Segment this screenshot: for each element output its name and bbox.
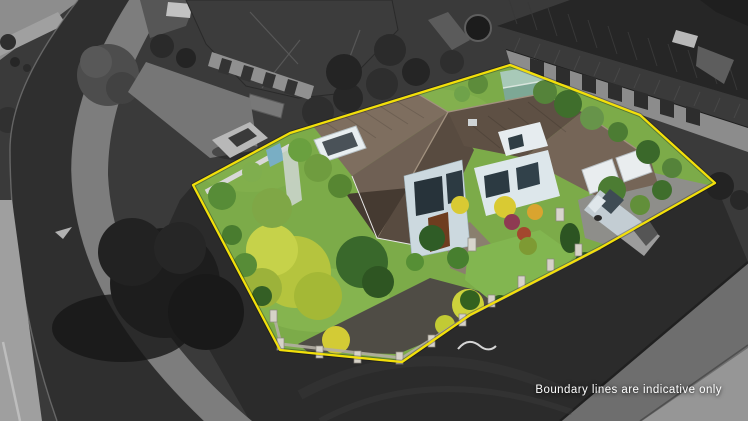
shrub: [208, 182, 236, 210]
red-cordyline: [504, 214, 520, 230]
aerial-photo: Boundary lines are indicative only: [0, 0, 748, 421]
shrub: [288, 138, 312, 162]
rock: [10, 57, 20, 67]
street-tree: [80, 46, 112, 78]
tree: [636, 140, 660, 164]
scene-canvas: [0, 0, 748, 421]
yellow-shrub: [451, 196, 469, 214]
tree: [608, 122, 628, 142]
hedge: [652, 180, 672, 200]
gate-pillar: [556, 208, 564, 221]
van-wheel: [594, 215, 602, 221]
shrub: [519, 237, 537, 255]
orange-shrub: [527, 204, 543, 220]
fence-post: [270, 310, 277, 322]
bush: [402, 58, 430, 86]
shrub: [328, 174, 352, 198]
bush: [326, 54, 362, 90]
bush: [176, 48, 196, 68]
fence-post: [575, 244, 582, 256]
fence-post: [547, 259, 554, 271]
bush: [366, 68, 398, 100]
front-window: [414, 176, 444, 216]
rock: [23, 64, 31, 72]
caption: Boundary lines are indicative only: [535, 384, 722, 396]
shrub: [454, 86, 470, 102]
roof-vent: [468, 119, 477, 126]
dark-green-tree: [362, 266, 394, 298]
round-bush: [447, 247, 469, 269]
bush: [374, 34, 406, 66]
chartreuse-tree: [294, 272, 342, 320]
bush: [440, 50, 464, 74]
hedge: [460, 290, 480, 310]
round-bush: [406, 253, 424, 271]
hedge: [630, 195, 650, 215]
shrub: [252, 188, 292, 228]
gate-pillar: [468, 238, 476, 251]
tree-canopy: [168, 274, 244, 350]
bush: [150, 34, 174, 58]
tree: [554, 90, 582, 118]
bush: [0, 34, 16, 50]
round-bush: [419, 225, 445, 251]
trampoline: [465, 15, 491, 41]
shrub: [242, 162, 262, 182]
tree: [662, 158, 682, 178]
tree: [580, 106, 604, 130]
tree-canopy: [154, 222, 206, 274]
